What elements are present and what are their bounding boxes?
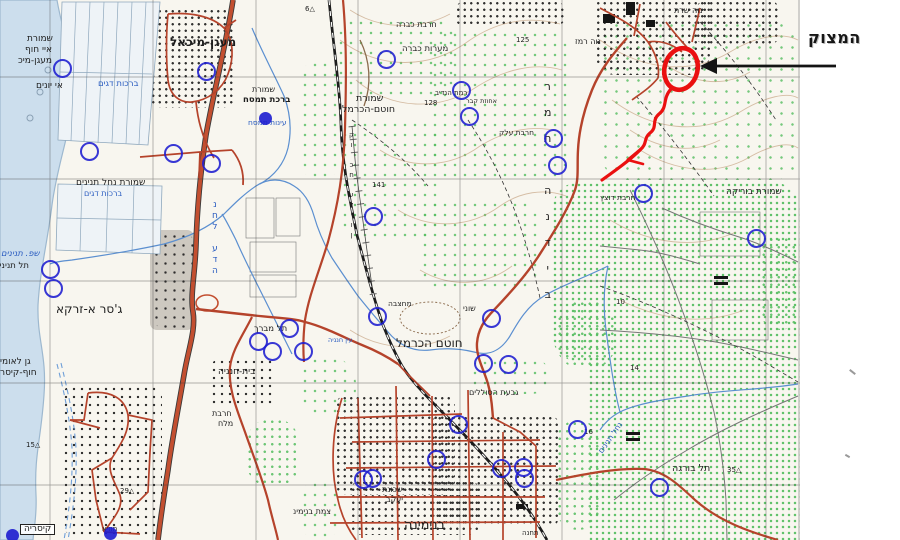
map-label: ג'סר א-זרקא xyxy=(56,303,122,315)
building xyxy=(516,504,528,509)
vertical-map-label: ר מ ת ה נ ד י ב xyxy=(544,74,551,308)
blue-marker-circle xyxy=(650,478,669,497)
blue-filled-marker xyxy=(6,529,19,540)
blue-marker-circle xyxy=(164,144,183,163)
blue-marker-circle xyxy=(452,81,471,100)
map-label: חרבת כברה xyxy=(396,21,437,29)
map-label: גבעת הסוללים xyxy=(469,389,519,397)
map-label: △6 xyxy=(305,6,315,13)
building xyxy=(714,282,728,285)
cliff-annotation-label: המצוק xyxy=(808,28,861,47)
map-label: תחנה xyxy=(522,530,539,537)
map-label: מעגן-מיכ xyxy=(18,57,52,66)
map-label: 14 xyxy=(630,365,639,372)
forest-area xyxy=(300,60,340,180)
building xyxy=(646,20,655,27)
built-up-area xyxy=(695,0,780,45)
blue-marker-circle xyxy=(499,355,518,374)
map-label: שמורת xyxy=(356,94,383,104)
blue-marker-circle xyxy=(280,319,299,338)
topographic-map: המצוק מעגן-מיכאלשמורתאיי חוףמעגן-מיכאי י… xyxy=(0,0,900,540)
page-margin xyxy=(800,0,900,540)
map-label: שמורת נחל תנינים xyxy=(76,179,145,188)
blue-marker-circle xyxy=(515,469,534,488)
map-label: חוטם הכרמל xyxy=(396,337,463,349)
map-label: שפ. תנינים xyxy=(1,250,40,259)
built-up-area xyxy=(152,232,194,328)
map-label: מעגן-מיכאל xyxy=(170,36,236,48)
blue-marker-circle xyxy=(263,342,282,361)
blue-filled-marker xyxy=(259,112,272,125)
map-label: שכונת xyxy=(382,486,403,494)
blue-marker-circle xyxy=(80,142,99,161)
blue-marker-circle xyxy=(449,415,468,434)
blue-marker-circle xyxy=(294,342,313,361)
map-label: חרבת xyxy=(212,410,232,418)
building xyxy=(626,432,640,435)
vertical-map-label: נ ח ל ע ד ה xyxy=(212,200,218,277)
map-label: מערות כברה xyxy=(402,45,448,54)
blue-marker-circle xyxy=(492,459,511,478)
building xyxy=(603,14,615,23)
map-label: 141 xyxy=(372,182,385,189)
map-label: נוה רמז xyxy=(575,38,601,46)
map-label: שוני xyxy=(463,305,476,313)
blue-marker-circle xyxy=(44,279,63,298)
map-label: 10 xyxy=(616,299,625,306)
blue-marker-circle xyxy=(202,154,221,173)
map-label: חוף-קיסר xyxy=(0,369,37,378)
map-label: ברכות דגים xyxy=(98,80,139,89)
map-label: צמת בנימינ xyxy=(293,508,331,516)
map-label: מלח xyxy=(218,420,233,428)
built-up-area xyxy=(210,358,276,408)
blue-marker-circle xyxy=(474,354,493,373)
map-label: ברכות דגים xyxy=(84,190,122,198)
blue-marker-circle xyxy=(482,309,501,328)
blue-marker-circle xyxy=(544,129,563,148)
blue-marker-circle xyxy=(747,229,766,248)
blue-marker-circle xyxy=(368,307,387,326)
map-label: שמורת xyxy=(27,35,53,44)
map-label: △15 xyxy=(26,442,40,449)
map-label: שמורת xyxy=(252,86,275,94)
map-label: גן לאומי xyxy=(0,358,31,367)
map-label: חוטם-הכרמל xyxy=(342,105,395,115)
map-label: איי חוף xyxy=(25,46,52,55)
blue-marker-circle xyxy=(568,420,587,439)
building xyxy=(626,438,640,441)
forest-area xyxy=(556,300,616,370)
blue-marker-circle xyxy=(53,59,72,78)
map-label: בית-חנניה xyxy=(218,368,255,377)
vertical-map-label: ק ו כ ח ע ל י ו ן xyxy=(349,130,354,240)
orchard-area xyxy=(760,236,800,330)
map-label: שמורת בוריקה xyxy=(726,188,782,197)
map-label: עין חנניה xyxy=(328,337,353,344)
map-label: תל בורגה xyxy=(672,464,710,474)
built-up-area xyxy=(150,8,235,108)
blue-marker-circle xyxy=(460,107,479,126)
forest-area xyxy=(246,418,300,488)
blue-marker-circle xyxy=(197,62,216,81)
forest-area xyxy=(588,356,800,540)
map-label: אי יונים xyxy=(36,82,63,91)
building xyxy=(714,276,728,279)
building xyxy=(626,2,635,15)
built-up-area xyxy=(455,0,565,28)
map-label: △29 xyxy=(120,488,134,495)
blue-marker-circle xyxy=(364,207,383,226)
blue-marker-circle xyxy=(427,450,446,469)
map-label: יעקב xyxy=(386,496,403,504)
blue-filled-marker xyxy=(104,527,117,540)
blue-marker-circle xyxy=(41,260,60,279)
map-label: מחצבה xyxy=(388,300,412,308)
map-label: נוה שרת xyxy=(674,7,703,15)
blue-marker-circle xyxy=(363,469,382,488)
map-label: בנימינה xyxy=(404,519,445,533)
blue-marker-circle xyxy=(377,50,396,69)
map-label: 128 xyxy=(424,100,437,107)
map-label: חרבת עלק xyxy=(499,129,534,137)
blue-marker-circle xyxy=(548,156,567,175)
map-label: אחוזת קבר xyxy=(466,98,497,105)
map-label: △35 xyxy=(727,467,741,474)
map-label: חרבת דוצץ xyxy=(600,194,635,202)
blue-marker-circle xyxy=(634,184,653,203)
map-label: ברכת תמסח xyxy=(243,96,290,105)
map-label: קיסריה xyxy=(20,524,55,535)
map-label: תל תנינים xyxy=(0,262,29,271)
map-label: 125 xyxy=(516,37,529,44)
built-up-area xyxy=(62,385,162,535)
forest-area xyxy=(420,200,540,290)
